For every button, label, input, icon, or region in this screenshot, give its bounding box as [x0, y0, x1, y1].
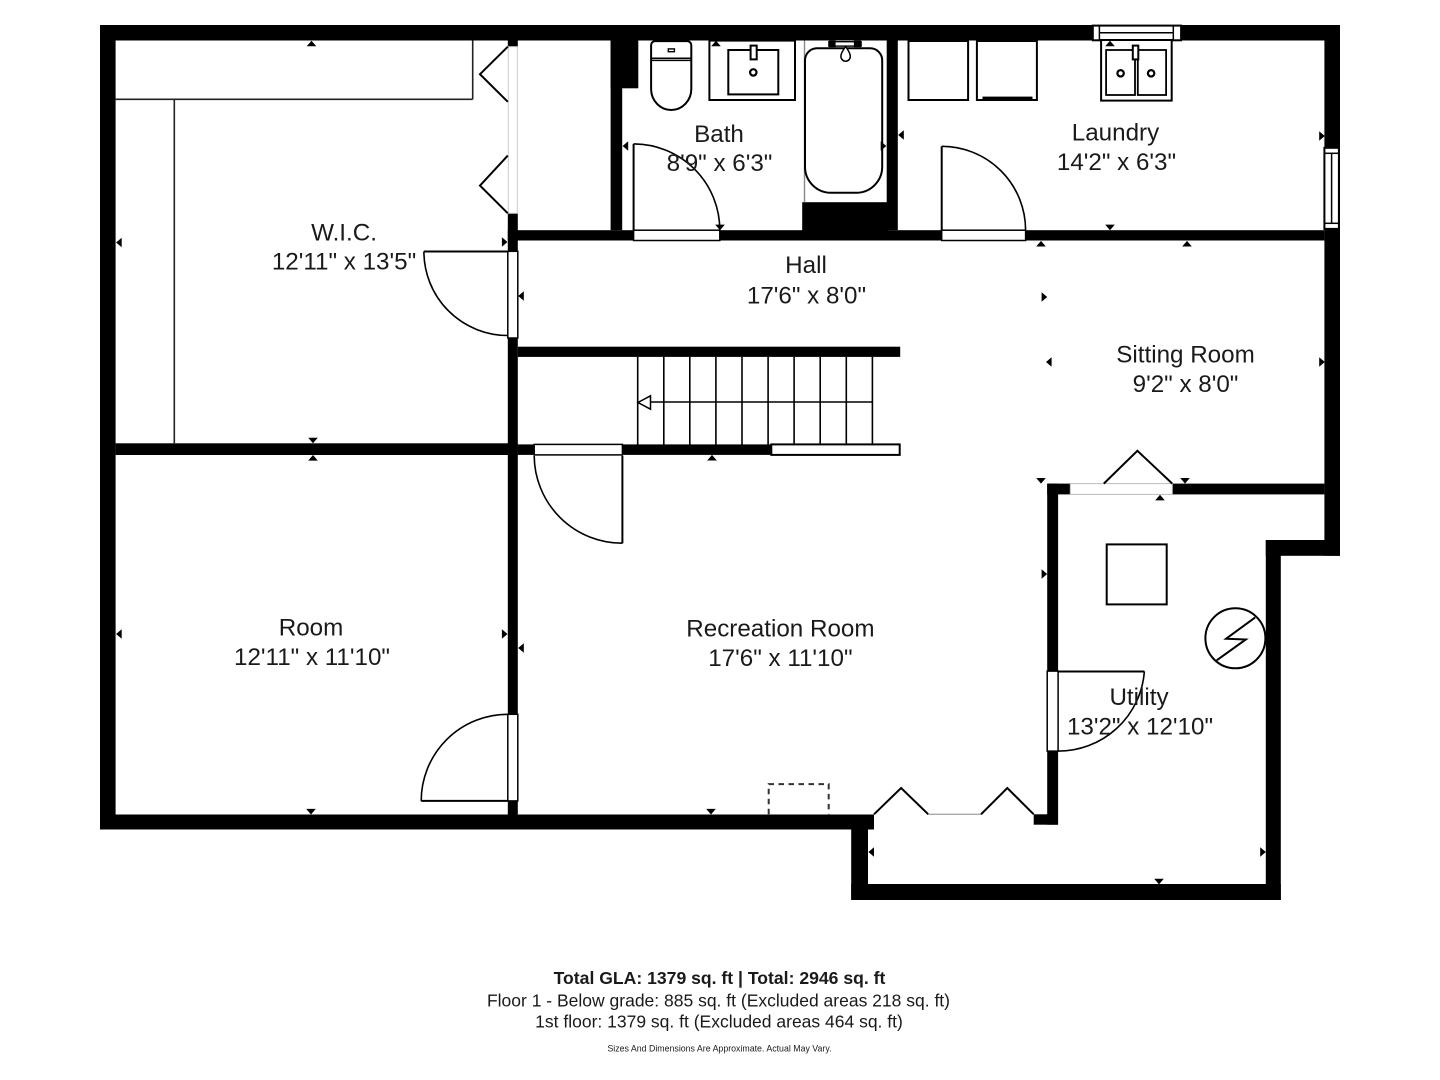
svg-text:Sizes And Dimensions Are Appro: Sizes And Dimensions Are Approximate. Ac…	[607, 1044, 831, 1054]
svg-text:12'11" x 11'10": 12'11" x 11'10"	[234, 644, 390, 671]
svg-text:17'6" x 11'10": 17'6" x 11'10"	[708, 645, 852, 672]
svg-text:Room: Room	[279, 614, 344, 641]
svg-text:9'2" x 8'0": 9'2" x 8'0"	[1133, 371, 1239, 398]
svg-text:Laundry: Laundry	[1072, 119, 1160, 146]
svg-text:17'6" x 8'0": 17'6" x 8'0"	[747, 282, 866, 309]
svg-text:1st floor: 1379 sq. ft (Exclud: 1st floor: 1379 sq. ft (Excluded areas 4…	[535, 1012, 903, 1032]
svg-text:Recreation Room: Recreation Room	[686, 615, 874, 642]
svg-text:Hall: Hall	[785, 252, 827, 279]
svg-text:14'2" x 6'3": 14'2" x 6'3"	[1057, 149, 1176, 176]
svg-text:Utility: Utility	[1109, 684, 1169, 711]
svg-text:8'9" x 6'3": 8'9" x 6'3"	[667, 150, 773, 177]
svg-text:13'2" x 12'10": 13'2" x 12'10"	[1067, 713, 1213, 740]
svg-text:Bath: Bath	[694, 121, 744, 148]
svg-text:Total GLA: 1379 sq. ft | Total: Total GLA: 1379 sq. ft | Total: 2946 sq.…	[554, 968, 886, 988]
svg-text:12'11" x 13'5": 12'11" x 13'5"	[272, 249, 416, 276]
svg-text:W.I.C.: W.I.C.	[311, 219, 377, 246]
svg-text:Floor 1 - Below grade: 885 sq.: Floor 1 - Below grade: 885 sq. ft (Exclu…	[487, 991, 950, 1011]
svg-text:Sitting Room: Sitting Room	[1116, 341, 1254, 368]
